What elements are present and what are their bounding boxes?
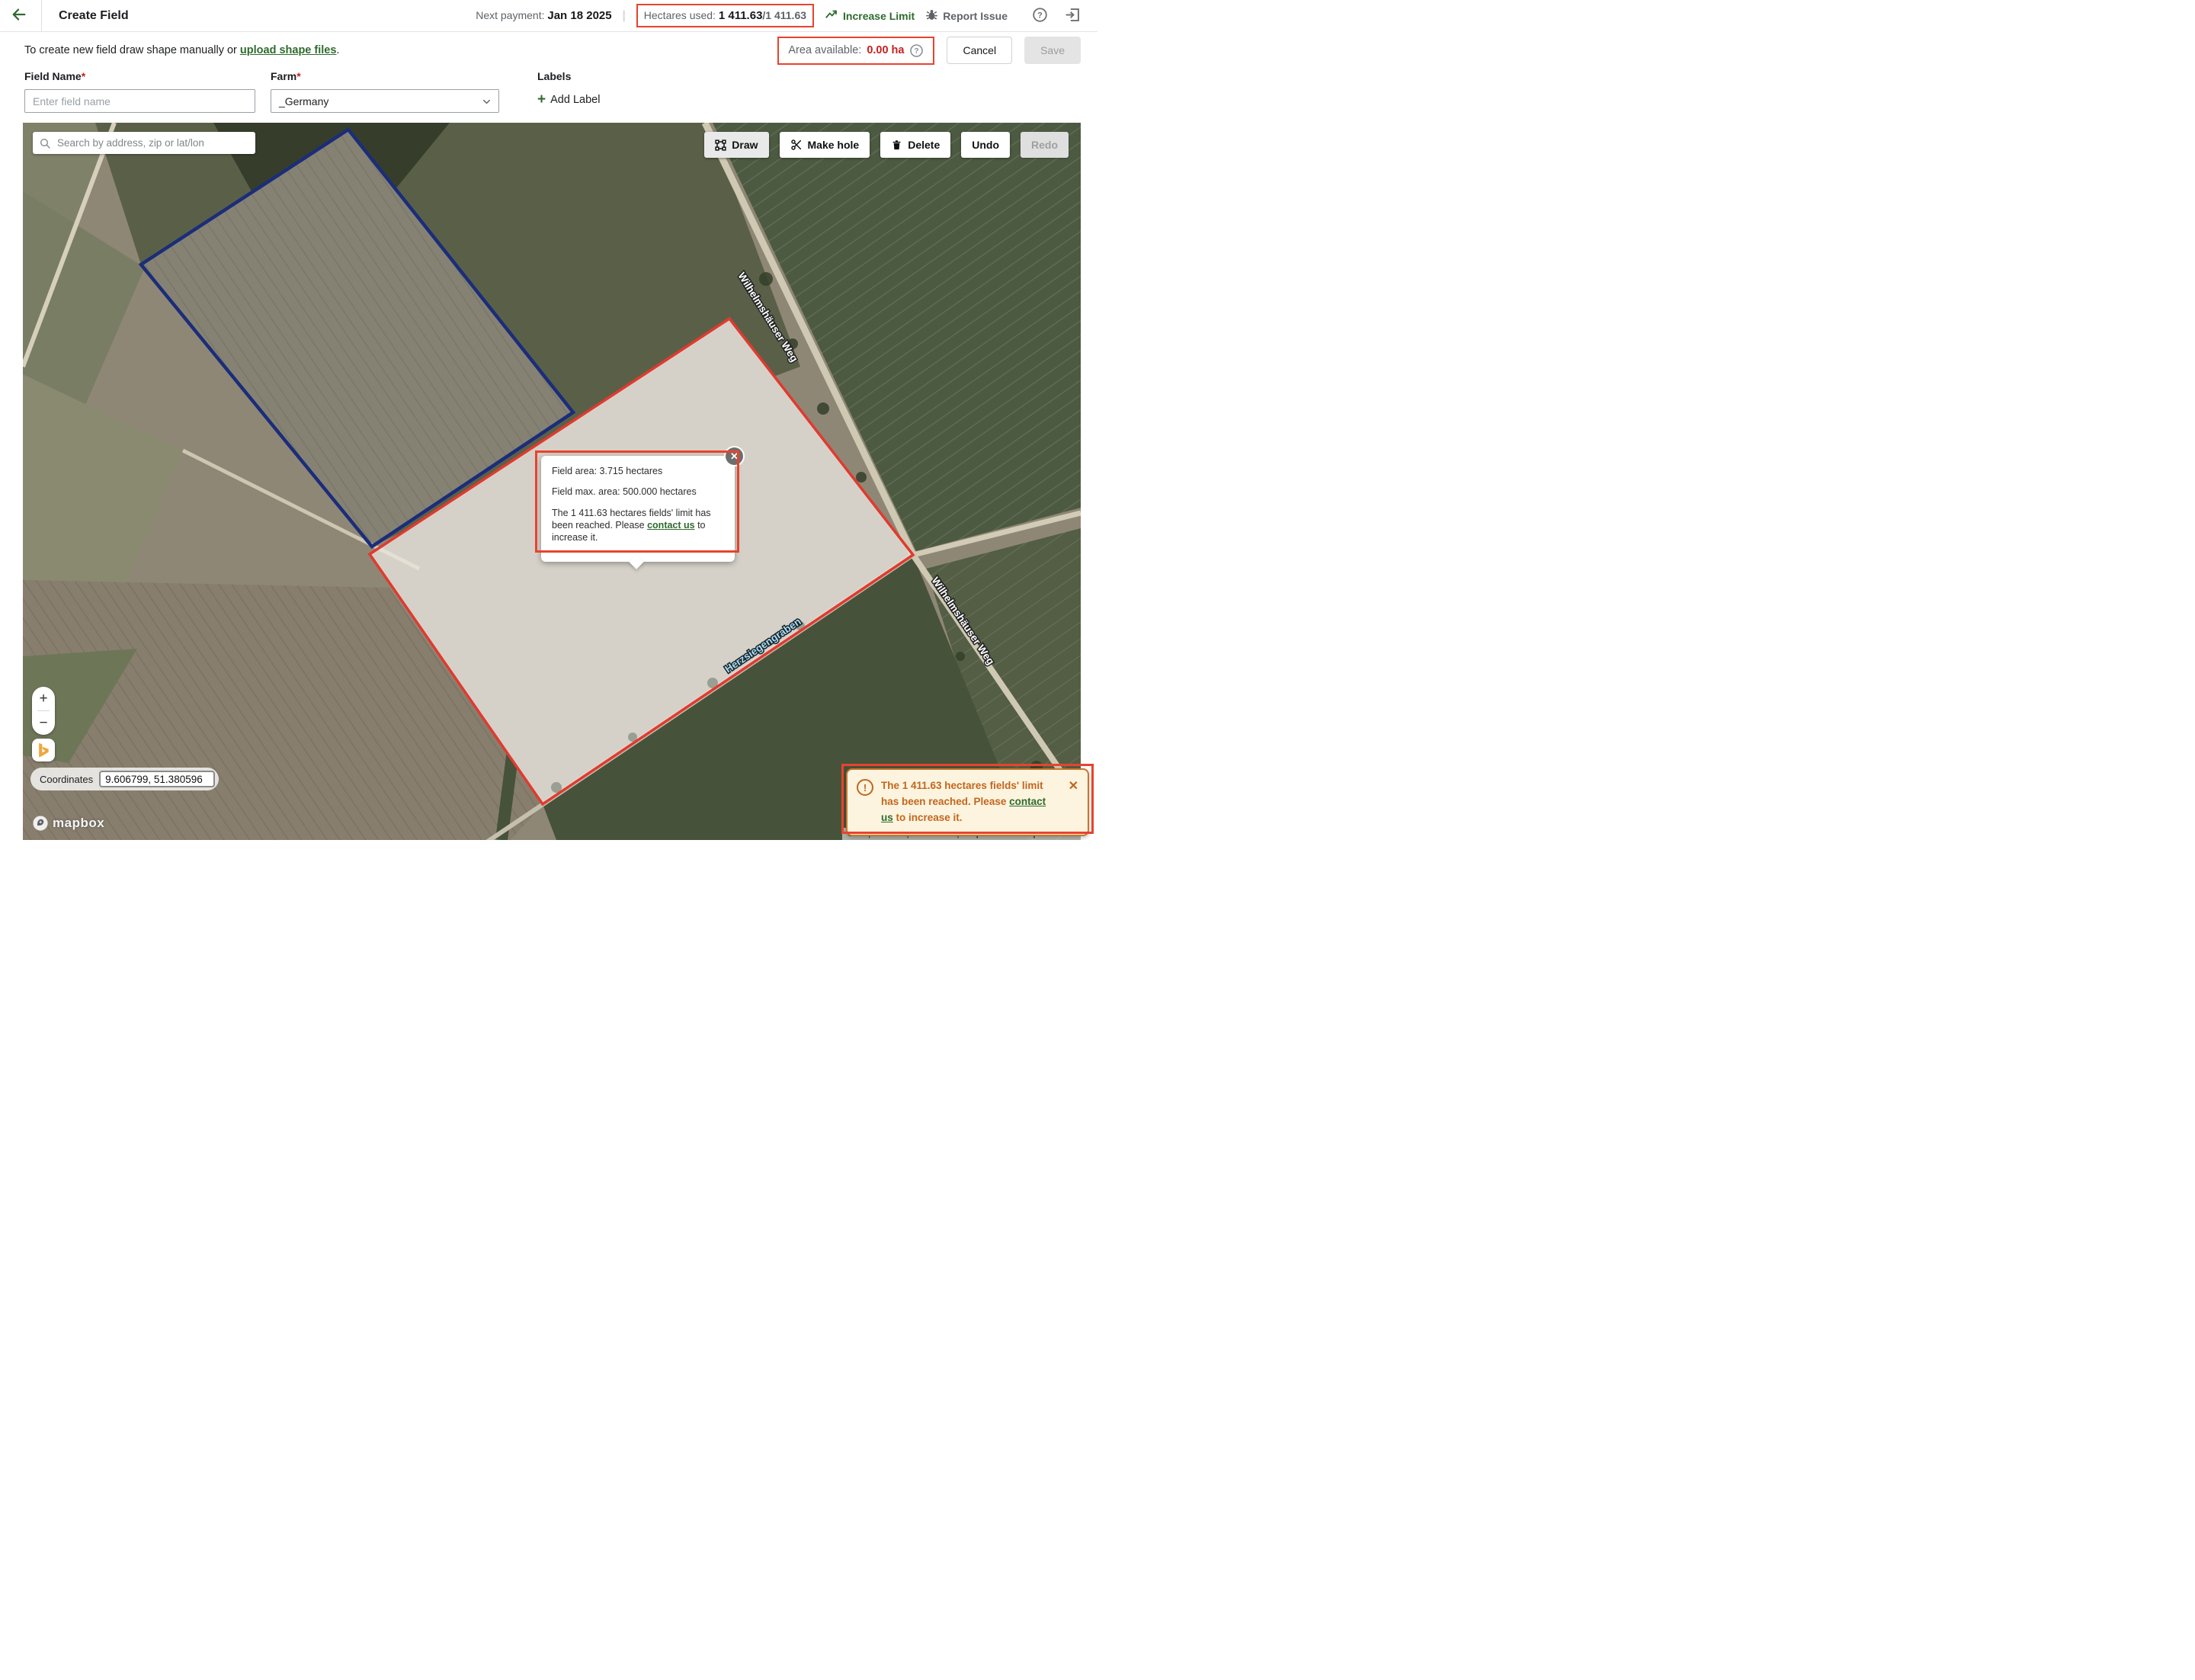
next-payment-value: Jan 18 2025 — [547, 9, 611, 22]
zoom-control: + − — [32, 687, 55, 735]
undo-button[interactable]: Undo — [961, 132, 1010, 158]
make-hole-button[interactable]: Make hole — [780, 132, 870, 158]
report-issue-label: Report Issue — [943, 10, 1008, 22]
mapbox-logo[interactable]: mapbox — [32, 815, 104, 832]
next-payment-label: Next payment: — [476, 9, 544, 21]
coordinates-label: Coordinates — [40, 774, 93, 785]
coordinates-control: Coordinates — [30, 768, 219, 790]
draw-label: Draw — [732, 139, 758, 151]
svg-text:?: ? — [915, 46, 919, 55]
bing-logo-icon — [37, 742, 50, 758]
field-area-popup: ✕ Field area: 3.715 hectares Field max. … — [541, 456, 735, 562]
limit-reached-text: The 1 411.63 hectares fields' limit has … — [552, 507, 724, 544]
field-form: Field Name* Farm* _Germany Labels + Add … — [0, 69, 1097, 120]
toast-close-button[interactable]: ✕ — [1067, 778, 1078, 794]
instruction-prefix: To create new field draw shape manually … — [24, 44, 240, 56]
logout-button[interactable] — [1062, 4, 1084, 28]
farm-select[interactable]: _Germany — [271, 89, 499, 113]
area-available-label: Area available: — [788, 44, 861, 56]
bing-imagery-button[interactable] — [32, 739, 55, 761]
plus-icon: + — [537, 95, 546, 105]
labels-group: Labels + Add Label — [537, 70, 600, 111]
field-area-text: Field area: 3.715 hectares — [552, 465, 724, 477]
area-help-icon[interactable]: ? — [909, 43, 924, 58]
add-label-text: Add Label — [550, 94, 600, 106]
farm-label-text: Farm — [271, 70, 296, 82]
required-asterisk: * — [82, 70, 85, 82]
search-icon — [39, 137, 51, 149]
instruction-suffix: . — [336, 44, 339, 56]
cancel-button[interactable]: Cancel — [947, 37, 1012, 64]
zoom-out-button[interactable]: − — [32, 711, 55, 735]
area-available-highlight: Area available: 0.00 ha ? — [777, 37, 934, 65]
field-name-label: Field Name* — [24, 70, 255, 82]
upload-shape-files-link[interactable]: upload shape files — [240, 44, 337, 56]
hectares-used-highlight: Hectares used: 1 411.63/1 411.63 — [636, 4, 814, 27]
trending-up-icon — [825, 8, 838, 24]
header-separator: | — [623, 9, 626, 23]
scissors-icon — [790, 139, 803, 151]
instruction-text: To create new field draw shape manually … — [24, 44, 339, 56]
trash-icon — [891, 139, 902, 151]
hectares-used-value: 1 411.63 — [719, 9, 763, 22]
limit-warning-toast: ! The 1 411.63 hectares fields' limit ha… — [846, 768, 1089, 836]
increase-limit-label: Increase Limit — [843, 10, 915, 22]
action-bar: To create new field draw shape manually … — [0, 32, 1097, 69]
increase-limit-button[interactable]: Increase Limit — [825, 8, 915, 24]
map-search-box — [33, 132, 255, 154]
hectares-total-value: /1 411.63 — [762, 9, 806, 21]
close-icon: ✕ — [1069, 780, 1078, 793]
farm-group: Farm* _Germany — [271, 70, 499, 113]
help-button[interactable]: ? — [1029, 4, 1051, 28]
map-toolbar: Draw Make hole Delete Undo Redo — [704, 132, 1069, 158]
back-arrow-icon — [11, 6, 27, 25]
labels-label: Labels — [537, 70, 600, 82]
map-search-input[interactable] — [57, 137, 249, 149]
svg-text:?: ? — [1037, 11, 1043, 20]
delete-label: Delete — [908, 139, 940, 151]
add-label-button[interactable]: + Add Label — [537, 89, 600, 111]
field-name-input[interactable] — [24, 89, 255, 113]
toast-message: The 1 411.63 hectares fields' limit has … — [881, 778, 1059, 826]
mapbox-logo-text: mapbox — [53, 816, 104, 831]
create-field-page: Create Field Next payment: Jan 18 2025 |… — [0, 0, 1097, 840]
area-available-value: 0.00 ha — [867, 44, 904, 56]
header-divider — [41, 0, 42, 31]
help-icon: ? — [1032, 7, 1048, 25]
coordinates-input[interactable] — [99, 771, 215, 787]
hectares-used-label: Hectares used: — [644, 9, 716, 21]
draw-button[interactable]: Draw — [704, 132, 768, 158]
delete-button[interactable]: Delete — [880, 132, 950, 158]
redo-label: Redo — [1031, 139, 1058, 151]
close-icon: ✕ — [730, 450, 739, 463]
farm-label: Farm* — [271, 70, 499, 82]
redo-button[interactable]: Redo — [1021, 132, 1069, 158]
mapbox-pin-icon — [32, 815, 49, 832]
warning-icon: ! — [857, 779, 873, 796]
field-name-group: Field Name* — [24, 70, 255, 113]
bug-icon — [925, 8, 938, 24]
exit-icon — [1065, 7, 1081, 25]
save-button[interactable]: Save — [1024, 37, 1081, 64]
next-payment: Next payment: Jan 18 2025 — [476, 9, 611, 22]
field-name-label-text: Field Name — [24, 70, 82, 82]
map-canvas[interactable]: Wilhelmshäuser Weg Wilhelmshäuser Weg He… — [23, 123, 1081, 840]
field-max-area-text: Field max. area: 500.000 hectares — [552, 486, 724, 498]
app-header: Create Field Next payment: Jan 18 2025 |… — [0, 0, 1097, 32]
contact-us-link[interactable]: contact us — [647, 520, 695, 531]
toast-text-suffix: to increase it. — [893, 812, 963, 823]
make-hole-label: Make hole — [808, 139, 860, 151]
draw-polygon-icon — [715, 139, 726, 151]
back-button[interactable] — [8, 3, 30, 28]
required-asterisk: * — [296, 70, 300, 82]
page-title: Create Field — [59, 9, 129, 23]
report-issue-button[interactable]: Report Issue — [925, 8, 1008, 24]
farm-selected-value: _Germany — [279, 95, 328, 107]
popup-close-button[interactable]: ✕ — [724, 446, 745, 466]
zoom-in-button[interactable]: + — [32, 687, 55, 710]
undo-label: Undo — [972, 139, 999, 151]
